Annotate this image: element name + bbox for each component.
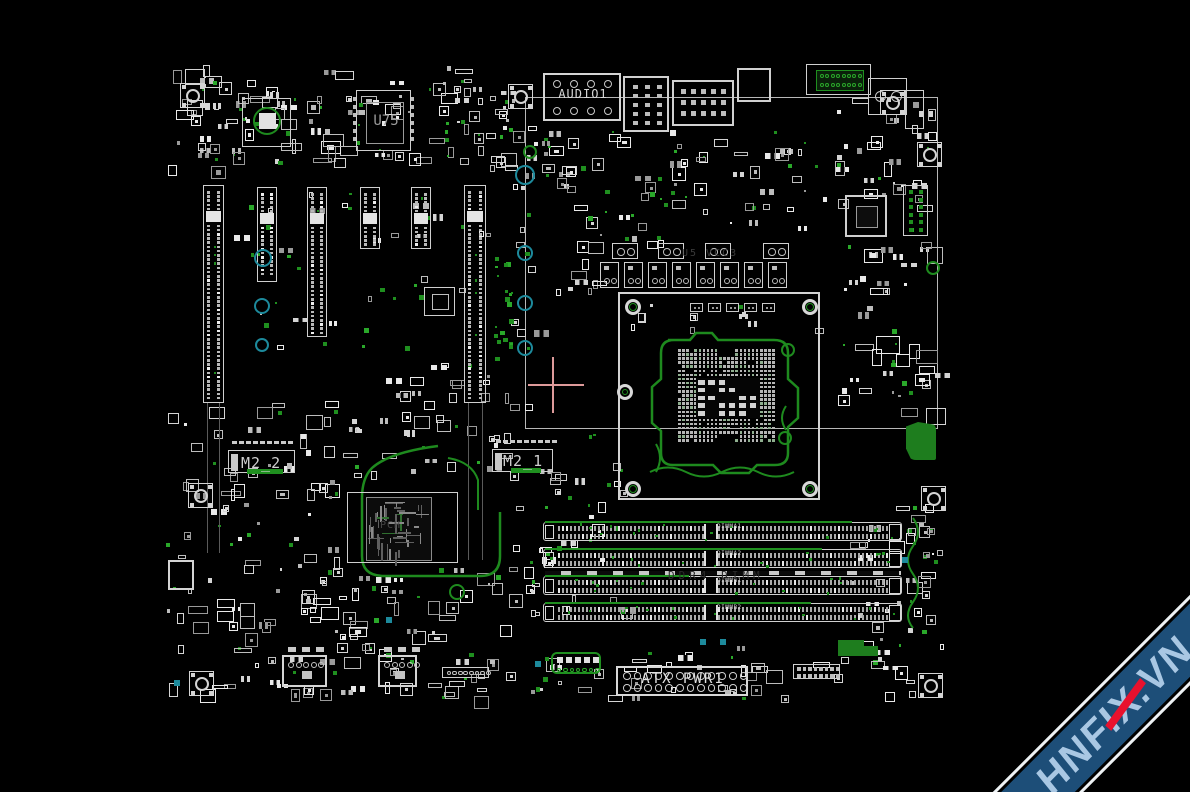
m2-pin bbox=[246, 441, 251, 444]
lga-pad bbox=[703, 427, 706, 430]
dimm-pin bbox=[678, 615, 680, 620]
dimm-pin bbox=[830, 588, 832, 593]
dimm-pin bbox=[810, 588, 812, 593]
dimm-pin bbox=[610, 607, 612, 612]
screw-hole-ring bbox=[923, 148, 937, 162]
capacitor-pad bbox=[698, 396, 705, 401]
dimm-pin bbox=[614, 534, 616, 539]
lga-pad bbox=[715, 353, 718, 356]
solder-pad-green bbox=[625, 237, 629, 241]
slot-pin bbox=[261, 201, 264, 204]
vrm-choke[interactable] bbox=[763, 243, 789, 259]
lga-pad bbox=[719, 419, 722, 422]
dimm-pin bbox=[838, 534, 840, 539]
slot-pin bbox=[468, 199, 471, 202]
lga-pad bbox=[690, 365, 693, 368]
pch-chip[interactable] bbox=[347, 492, 458, 563]
lga-pad bbox=[764, 415, 767, 418]
component-pad bbox=[225, 88, 228, 91]
vrm-choke[interactable] bbox=[612, 243, 638, 259]
slot-pin bbox=[320, 315, 323, 318]
slot-pin bbox=[479, 397, 482, 400]
lga-pad bbox=[760, 431, 763, 434]
solder-pad-green bbox=[869, 607, 872, 610]
dimm-pin bbox=[782, 615, 784, 620]
vrm-mosfet[interactable] bbox=[696, 262, 715, 288]
screw-hole-ring bbox=[195, 677, 209, 691]
solder-pad-green bbox=[380, 288, 385, 293]
solder-pad-green bbox=[802, 614, 805, 617]
solder-pad-green bbox=[753, 583, 756, 586]
slot-pin bbox=[217, 237, 220, 240]
dimm-pin bbox=[654, 580, 656, 585]
solder-pad bbox=[804, 190, 806, 192]
component-outline bbox=[486, 133, 496, 139]
vrm-mosfet[interactable] bbox=[648, 262, 667, 288]
slot-pin bbox=[424, 231, 427, 234]
chip-resistor bbox=[407, 629, 418, 634]
dimm-pin bbox=[582, 607, 584, 612]
dimm-pin bbox=[762, 607, 764, 612]
dimm-pin bbox=[770, 553, 772, 558]
dimm-pin bbox=[578, 561, 580, 566]
slot-pin bbox=[311, 193, 314, 196]
dimm-pin bbox=[602, 534, 604, 539]
component-outline bbox=[495, 109, 507, 115]
connector-pad bbox=[645, 121, 650, 125]
dimm-pin bbox=[758, 588, 760, 593]
rear-io-connector[interactable] bbox=[737, 68, 771, 102]
connector-pad bbox=[721, 100, 726, 105]
slot-pin bbox=[468, 304, 471, 307]
solder-pad-green bbox=[830, 578, 833, 581]
solder-pad-green bbox=[497, 275, 500, 278]
solder-pad-green bbox=[919, 198, 923, 202]
slot-pin bbox=[468, 325, 471, 328]
lga-pad bbox=[748, 431, 751, 434]
dimm-pin bbox=[762, 588, 764, 593]
lga-pad bbox=[727, 431, 730, 434]
slot-pin bbox=[311, 197, 314, 200]
lga-pad bbox=[735, 370, 738, 373]
solder-pad-green bbox=[511, 292, 513, 294]
component-pad bbox=[622, 141, 627, 145]
lga-pad bbox=[719, 365, 722, 368]
vrm-mosfet[interactable] bbox=[624, 262, 643, 288]
inductor-component[interactable] bbox=[845, 195, 887, 237]
solder-pad-green bbox=[887, 561, 890, 564]
green-ring bbox=[449, 584, 465, 600]
lga-pad bbox=[678, 382, 681, 385]
slot-pin bbox=[270, 235, 273, 238]
solder-pad-green bbox=[447, 155, 449, 157]
header-pin bbox=[570, 668, 574, 672]
dimm-pin bbox=[870, 561, 872, 566]
dimm-pin bbox=[862, 588, 864, 593]
dimm-pin bbox=[798, 580, 800, 585]
dimm-pin bbox=[606, 588, 608, 593]
solder-pad-green bbox=[505, 290, 508, 293]
lga-pad bbox=[760, 402, 763, 405]
dimm-pin bbox=[670, 553, 672, 558]
solder-pad-green bbox=[682, 562, 685, 565]
lga-pad bbox=[772, 439, 775, 442]
capacitor bbox=[744, 303, 757, 312]
dimm-pin bbox=[874, 607, 876, 612]
dimm-pin bbox=[622, 534, 624, 539]
inductor-component[interactable] bbox=[242, 98, 291, 147]
dimm-pin bbox=[666, 561, 668, 566]
vrm-mosfet[interactable] bbox=[744, 262, 763, 288]
lga-pad bbox=[707, 361, 710, 364]
slot-pin bbox=[217, 300, 220, 303]
pcie-slot[interactable] bbox=[464, 185, 486, 403]
component-outline bbox=[198, 143, 206, 151]
mounting-hole-teal bbox=[254, 298, 270, 314]
lga-pad bbox=[744, 365, 747, 368]
dimm-latch bbox=[889, 551, 901, 567]
slot-pin bbox=[207, 204, 210, 207]
dimm-pin bbox=[838, 553, 840, 558]
lga-pad bbox=[740, 353, 743, 356]
chip-resistor bbox=[456, 659, 468, 665]
chip-resistor bbox=[534, 330, 549, 337]
dimm-pin bbox=[794, 615, 796, 620]
dimm-pin bbox=[758, 615, 760, 620]
mounting-hole-teal bbox=[254, 249, 272, 267]
lga-pad bbox=[699, 435, 702, 438]
component-outline bbox=[486, 233, 491, 237]
pin-hole bbox=[604, 278, 611, 285]
dimm-pin bbox=[786, 588, 788, 593]
dimm-pin bbox=[850, 588, 852, 593]
lga-pad bbox=[756, 439, 759, 442]
dimm-pin bbox=[790, 561, 792, 566]
component-pad bbox=[322, 487, 325, 490]
component-outline bbox=[632, 659, 647, 663]
lga-pad bbox=[694, 435, 697, 438]
component-outline bbox=[531, 610, 536, 617]
dimm-pin bbox=[666, 615, 668, 620]
dimm-pin bbox=[682, 553, 684, 558]
lga-pad bbox=[748, 365, 751, 368]
slot-pin bbox=[424, 206, 427, 209]
component-outline bbox=[588, 288, 593, 295]
header-pad bbox=[808, 667, 812, 671]
chip-resistor bbox=[213, 103, 221, 109]
component-pad bbox=[678, 173, 681, 176]
dimm-pin bbox=[646, 526, 648, 531]
dimm-pin bbox=[882, 615, 884, 620]
header-tab bbox=[302, 671, 312, 679]
dimm-pin bbox=[662, 580, 664, 585]
chip-resistor bbox=[883, 371, 894, 376]
front-audio-header[interactable] bbox=[551, 652, 601, 674]
vrm-mosfet[interactable] bbox=[600, 262, 619, 288]
dimm-pin bbox=[870, 588, 872, 593]
solder-pad-green bbox=[581, 166, 585, 170]
dimm-pin bbox=[866, 615, 868, 620]
lga-pad bbox=[686, 390, 689, 393]
u75-chip-label: U75 bbox=[362, 113, 410, 129]
component-outline bbox=[574, 205, 588, 210]
lga-pad bbox=[744, 431, 747, 434]
dimm-pin bbox=[842, 580, 844, 585]
dimm-pin bbox=[686, 615, 688, 620]
component-outline bbox=[638, 223, 647, 231]
slot-pin bbox=[320, 243, 323, 246]
lga-pad bbox=[690, 374, 693, 377]
connector-pad bbox=[633, 112, 638, 116]
slot-pin bbox=[207, 380, 210, 383]
dimm-pin bbox=[790, 607, 792, 612]
vrm-mosfet[interactable] bbox=[768, 262, 787, 288]
vrm-mosfet[interactable] bbox=[672, 262, 691, 288]
pcie-slot[interactable] bbox=[203, 185, 224, 403]
dimm-pin bbox=[882, 561, 884, 566]
chip-pin bbox=[411, 113, 414, 117]
dimm-pin bbox=[686, 534, 688, 539]
dimm-pin bbox=[658, 615, 660, 620]
usb-header[interactable] bbox=[282, 655, 327, 687]
lga-pad bbox=[678, 386, 681, 389]
corner-tab bbox=[938, 675, 942, 679]
connector-pad bbox=[645, 103, 650, 107]
slot-tail-line bbox=[219, 403, 220, 553]
solder-pad-green bbox=[362, 345, 365, 348]
dimm-pin bbox=[770, 580, 772, 585]
vrm-mosfet[interactable] bbox=[720, 262, 739, 288]
solder-pad-green bbox=[826, 536, 829, 539]
choke-hole bbox=[627, 248, 635, 256]
choke-hole bbox=[663, 248, 671, 256]
capacitor bbox=[762, 303, 775, 312]
component-outline bbox=[317, 96, 321, 104]
component-pad bbox=[271, 660, 274, 663]
pin-header[interactable] bbox=[442, 667, 489, 678]
solder-pad bbox=[837, 110, 841, 114]
header-pin bbox=[311, 662, 317, 668]
chip-pin bbox=[411, 137, 414, 141]
lga-pad bbox=[764, 382, 767, 385]
dimm-slot-label: DIMMA2 bbox=[717, 550, 742, 557]
dimm-pin bbox=[742, 615, 744, 620]
rear-io-connector[interactable] bbox=[623, 76, 669, 132]
choke-hole bbox=[617, 248, 625, 256]
solder-pad-green bbox=[509, 319, 514, 324]
dimm-pin bbox=[662, 526, 664, 531]
dimm-pin bbox=[778, 553, 780, 558]
chip-resistor bbox=[889, 159, 901, 165]
pad-pair bbox=[384, 647, 392, 652]
dimm-pin bbox=[774, 615, 776, 620]
m2-pin bbox=[274, 441, 279, 444]
component-outline bbox=[528, 126, 538, 131]
atx-pin-hole bbox=[623, 672, 631, 680]
slot-pin bbox=[217, 388, 220, 391]
connector-pin bbox=[852, 83, 856, 87]
solder-pad-green bbox=[592, 581, 595, 584]
usb-header[interactable] bbox=[378, 655, 417, 687]
dimm-pin bbox=[630, 607, 632, 612]
connector-pin bbox=[847, 74, 851, 78]
component-outline bbox=[355, 428, 360, 434]
dimm-pin bbox=[614, 615, 616, 620]
lga-pad bbox=[735, 439, 738, 442]
rear-io-connector[interactable] bbox=[672, 80, 734, 126]
slot-pin bbox=[207, 229, 210, 232]
cpu-socket[interactable] bbox=[618, 292, 820, 500]
dimm-pin bbox=[874, 588, 876, 593]
connector-pad bbox=[691, 89, 696, 94]
solder-pad-green bbox=[546, 174, 548, 176]
component-outline bbox=[513, 131, 525, 143]
slot-pin bbox=[479, 233, 482, 236]
dimm-pin bbox=[562, 580, 564, 585]
solder-pad-green bbox=[913, 506, 917, 510]
lga-pad bbox=[752, 365, 755, 368]
solder-pad bbox=[589, 515, 593, 519]
component-outline bbox=[551, 472, 561, 481]
solder-pad bbox=[674, 183, 677, 186]
slot-pin bbox=[479, 317, 482, 320]
header-pin bbox=[407, 662, 413, 668]
connector-pad bbox=[721, 111, 726, 116]
dimm-pin bbox=[766, 588, 768, 593]
rear-io-connector[interactable] bbox=[905, 90, 924, 129]
solder-pad-green bbox=[909, 205, 913, 209]
slot-pin bbox=[479, 271, 482, 274]
dimm-pin bbox=[854, 526, 856, 531]
dimm-pin bbox=[694, 588, 696, 593]
m2-slot-2-label: M2_2 bbox=[241, 454, 281, 472]
crystal-component[interactable] bbox=[424, 287, 455, 316]
solder-pad bbox=[844, 144, 848, 148]
pad-pair bbox=[316, 647, 324, 652]
connector-pad bbox=[711, 100, 716, 105]
watermark-x-letter: X bbox=[1102, 679, 1148, 731]
dimm-pin bbox=[586, 526, 588, 531]
pcie-slot[interactable] bbox=[411, 187, 431, 249]
slot-pin bbox=[320, 252, 323, 255]
solder-pad bbox=[600, 234, 603, 237]
component-pad bbox=[597, 163, 600, 166]
dimm-pin bbox=[590, 561, 592, 566]
rear-io-connector[interactable] bbox=[806, 64, 871, 95]
slot-pin bbox=[217, 225, 220, 228]
mounting-hole-teal bbox=[255, 338, 269, 352]
dimm-pin bbox=[682, 534, 684, 539]
corner-tab bbox=[191, 673, 195, 677]
dimm-pin bbox=[618, 607, 620, 612]
lga-pad bbox=[772, 365, 775, 368]
component-outline bbox=[513, 184, 517, 190]
corner-tab bbox=[200, 85, 204, 89]
pcie-slot[interactable] bbox=[360, 187, 380, 249]
solder-pad-green bbox=[500, 331, 504, 335]
component-pad bbox=[557, 491, 560, 494]
pad bbox=[724, 266, 729, 270]
capacitor-pad bbox=[729, 388, 736, 393]
slot-pin bbox=[468, 321, 471, 324]
solder-pad-green bbox=[732, 617, 735, 620]
dimm-pin bbox=[566, 580, 568, 585]
slot-pin bbox=[217, 376, 220, 379]
lga-pad bbox=[768, 390, 771, 393]
slot-pin bbox=[217, 275, 220, 278]
slot-pin bbox=[468, 338, 471, 341]
dimm-pin bbox=[622, 553, 624, 558]
connector-pin bbox=[842, 83, 846, 87]
lga-pad bbox=[768, 349, 771, 352]
slot-pin bbox=[320, 210, 323, 213]
slot-pin bbox=[217, 372, 220, 375]
pcie-slot[interactable] bbox=[307, 187, 327, 337]
dimm-key-wall bbox=[704, 524, 706, 539]
component-outline bbox=[211, 166, 226, 178]
dimm-pin bbox=[622, 615, 624, 620]
component-outline bbox=[766, 670, 783, 684]
solder-pad-green bbox=[766, 565, 769, 568]
lga-pad bbox=[678, 370, 681, 373]
lga-pad bbox=[764, 398, 767, 401]
component-pad bbox=[784, 698, 787, 701]
slot-pin bbox=[311, 206, 314, 209]
vrm-choke[interactable] bbox=[658, 243, 684, 259]
pin-hole bbox=[611, 278, 618, 285]
solder-pad-green bbox=[507, 302, 512, 307]
lga-pad bbox=[764, 431, 767, 434]
lga-pad bbox=[682, 361, 685, 364]
lga-pad bbox=[690, 411, 693, 414]
lga-pad bbox=[694, 357, 697, 360]
dimm-pin bbox=[570, 615, 572, 620]
dimm-pin bbox=[586, 580, 588, 585]
pch-trace bbox=[407, 518, 408, 527]
chip-resistor bbox=[329, 321, 337, 325]
slot-pin bbox=[207, 262, 210, 265]
component-pad bbox=[781, 154, 784, 157]
dimm-pin bbox=[646, 553, 648, 558]
solder-pad-green bbox=[405, 346, 410, 351]
corner-tab bbox=[938, 693, 942, 697]
lga-pad bbox=[727, 419, 730, 422]
dimm-pin bbox=[746, 607, 748, 612]
solder-pad bbox=[632, 236, 638, 242]
chip-resistor bbox=[259, 622, 268, 629]
slot-pin bbox=[270, 243, 273, 246]
lga-pad bbox=[772, 402, 775, 405]
pcie-slot[interactable] bbox=[257, 187, 277, 282]
pin-header[interactable] bbox=[903, 185, 928, 236]
solder-pad bbox=[837, 155, 842, 160]
lga-pad bbox=[764, 427, 767, 430]
dimm-pin bbox=[762, 534, 764, 539]
front-panel-header[interactable] bbox=[793, 664, 840, 679]
lga-pad bbox=[764, 411, 767, 414]
dimm-pin bbox=[694, 534, 696, 539]
solder-pad-green bbox=[589, 610, 592, 613]
dimm-pin bbox=[582, 526, 584, 531]
solder-pad-green bbox=[287, 255, 290, 258]
lga-pad bbox=[748, 370, 751, 373]
dimm-pin bbox=[666, 526, 668, 531]
solder-pad bbox=[908, 628, 913, 633]
connector-pad bbox=[681, 111, 686, 116]
dimm-pin bbox=[854, 553, 856, 558]
solder-pad bbox=[540, 688, 543, 691]
lga-pad bbox=[744, 439, 747, 442]
